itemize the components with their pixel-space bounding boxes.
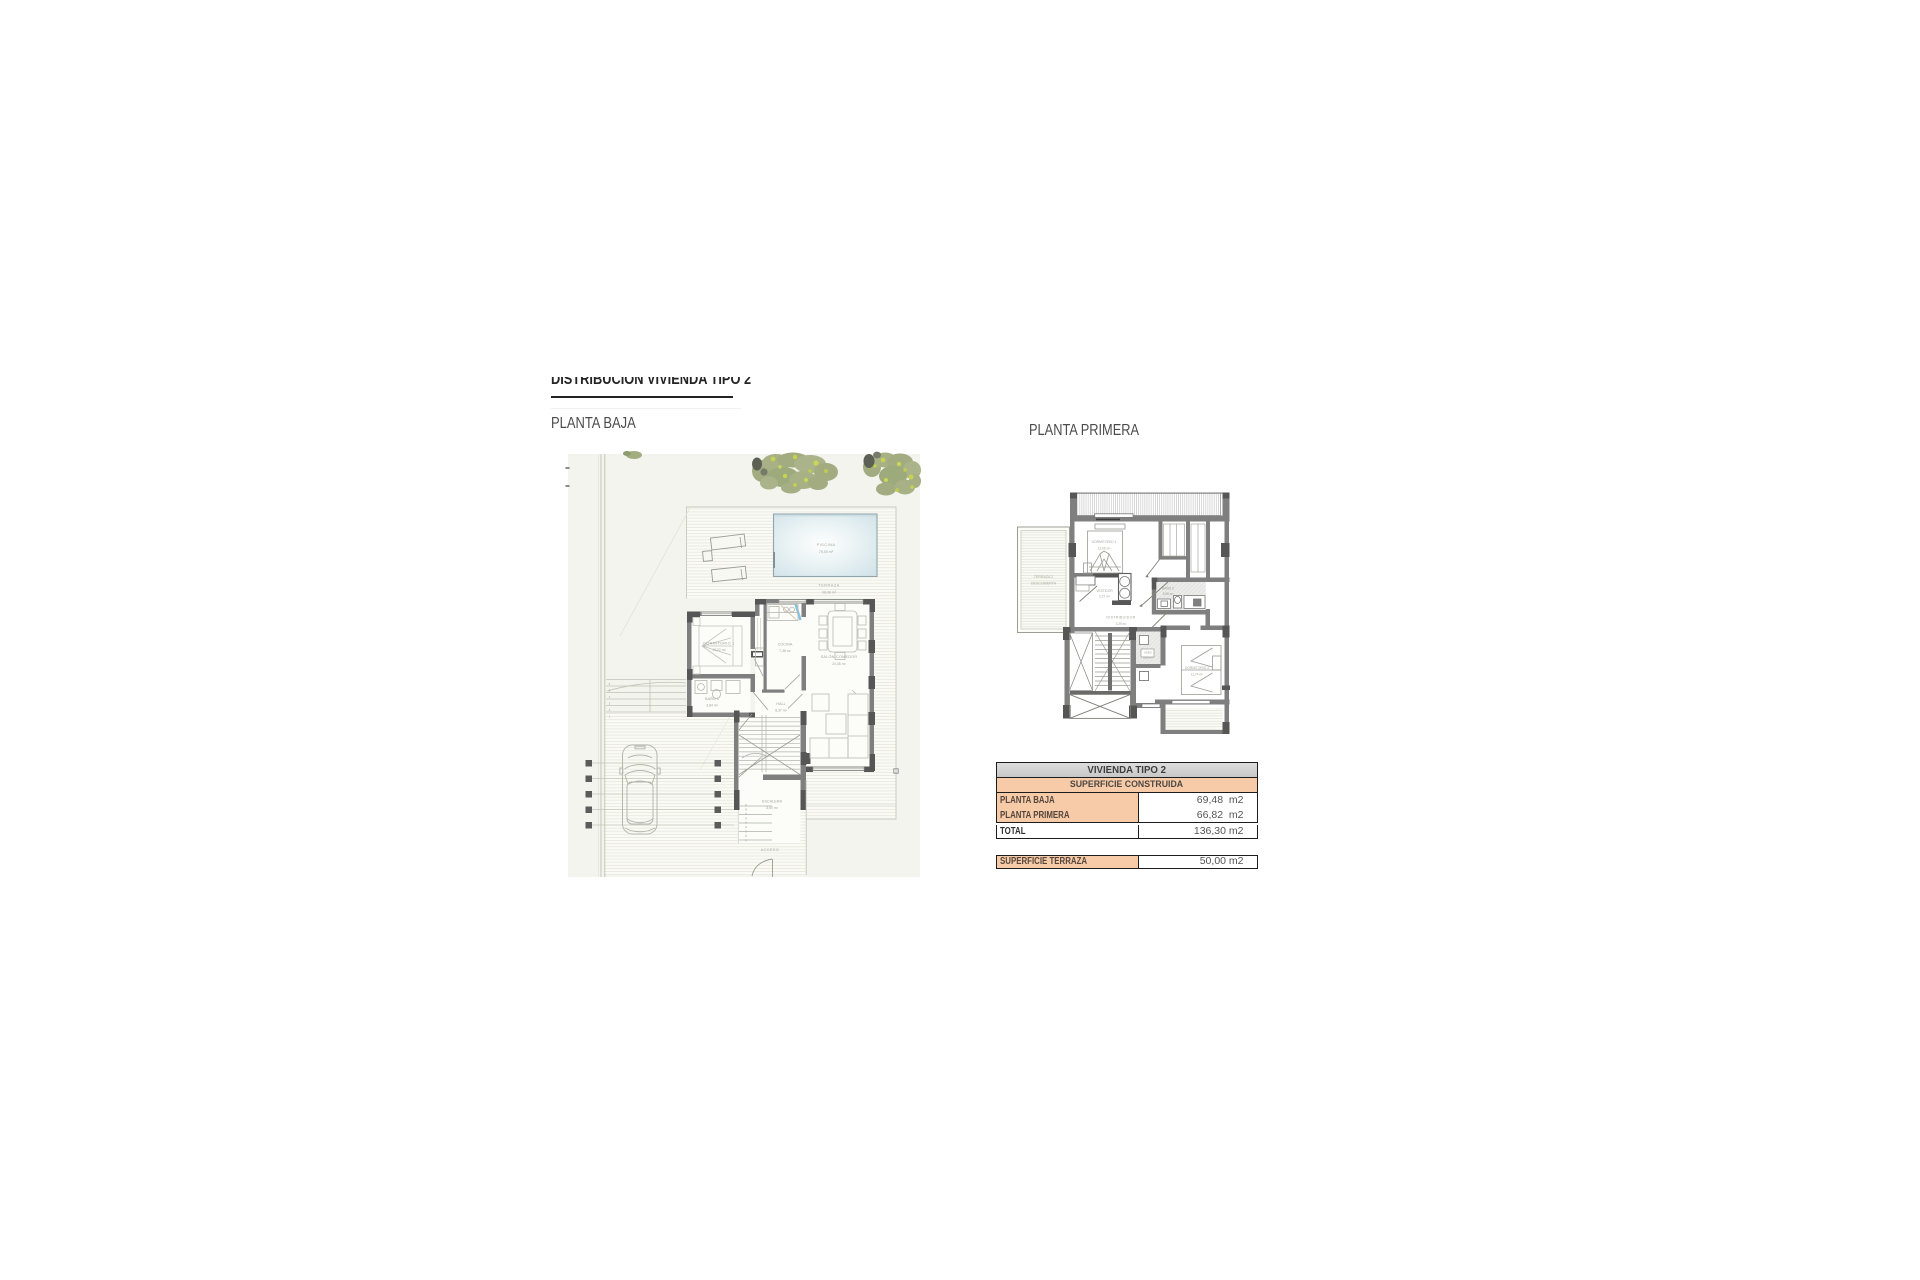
svg-text:3,95 m²: 3,95 m² (1163, 592, 1174, 596)
svg-text:DESCUBIERTA: DESCUBIERTA (1031, 582, 1057, 586)
svg-text:7,36 m²: 7,36 m² (779, 649, 791, 653)
svg-text:75,00 m²: 75,00 m² (819, 550, 834, 554)
svg-text:BAÑO 1: BAÑO 1 (705, 696, 719, 701)
svg-text:3,84 m²: 3,84 m² (706, 704, 718, 708)
svg-text:TERRAZA 2: TERRAZA 2 (1034, 575, 1054, 579)
svg-text:DISTRIBUIDOR: DISTRIBUIDOR (1106, 616, 1135, 620)
svg-text:HALL: HALL (776, 702, 786, 706)
svg-text:8,37 m²: 8,37 m² (775, 709, 787, 713)
svg-text:2,27 m²: 2,27 m² (1099, 595, 1110, 599)
svg-text:2,03 m²: 2,03 m² (1143, 656, 1153, 660)
svg-text:DORMITORIO 1: DORMITORIO 1 (703, 642, 734, 646)
svg-text:BAÑO 2: BAÑO 2 (1162, 586, 1174, 591)
svg-text:38,08 m²: 38,08 m² (822, 591, 837, 595)
svg-text:ASEO: ASEO (1144, 651, 1153, 655)
svg-text:ACCESO: ACCESO (761, 848, 779, 852)
svg-text:VESTIDOR: VESTIDOR (1096, 589, 1113, 593)
svg-text:TERRAZA: TERRAZA (818, 583, 839, 588)
svg-text:COCINA: COCINA (778, 643, 793, 647)
svg-text:10,22 m²: 10,22 m² (712, 648, 726, 652)
svg-text:3,29 m²: 3,29 m² (1116, 622, 1127, 626)
svg-text:DORMITORIO 1: DORMITORIO 1 (1092, 540, 1117, 544)
svg-text:3,60 m²: 3,60 m² (766, 806, 778, 810)
svg-text:24,36 m²: 24,36 m² (832, 662, 846, 666)
svg-text:DORMITORIO 2: DORMITORIO 2 (1185, 666, 1209, 670)
svg-text:13,06 m²: 13,06 m² (1098, 547, 1111, 551)
svg-text:SALÓN-COMEDOR: SALÓN-COMEDOR (821, 654, 858, 659)
svg-text:PISCINA: PISCINA (817, 542, 836, 547)
svg-text:11,74 m²: 11,74 m² (1191, 673, 1203, 677)
svg-text:ESCALERA: ESCALERA (762, 800, 783, 804)
